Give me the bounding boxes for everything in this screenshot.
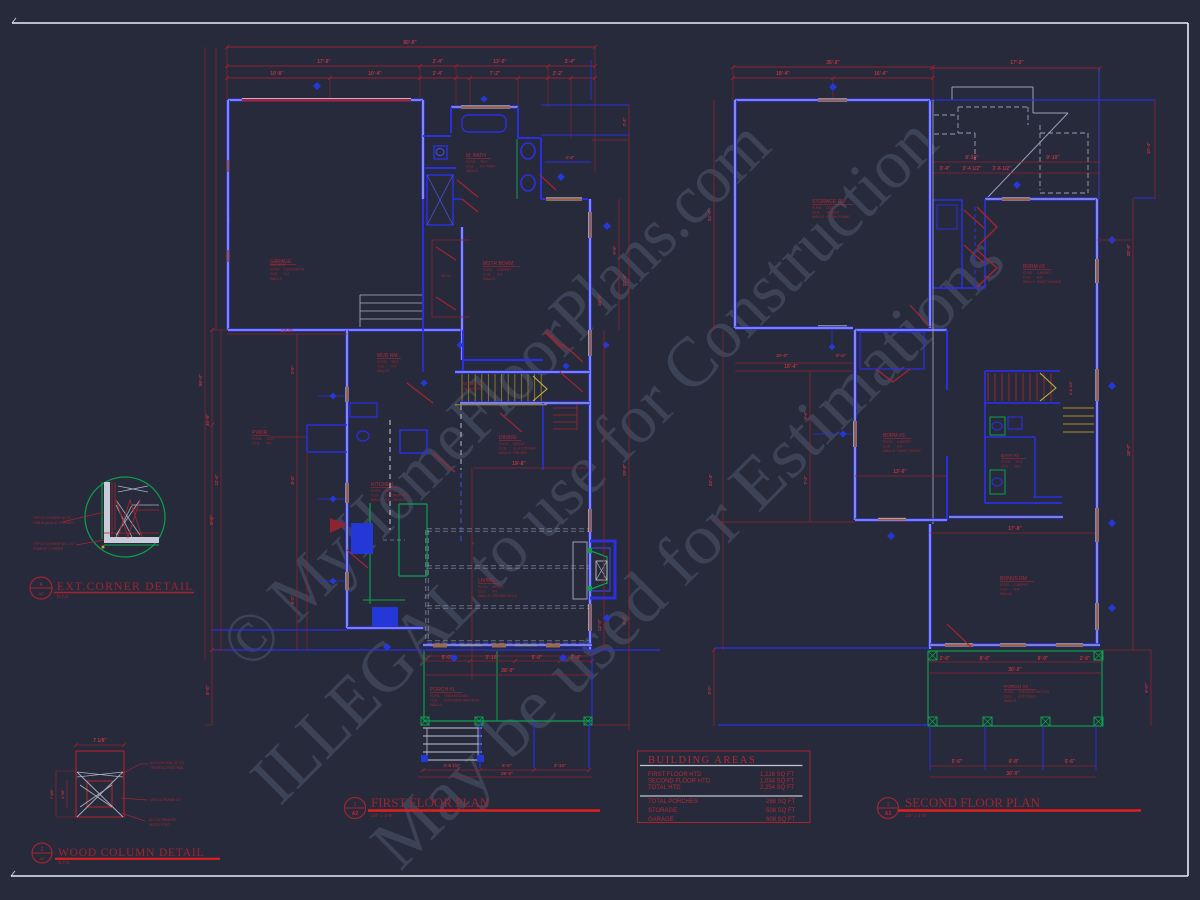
svg-text:FLRG: FLRG (883, 440, 893, 444)
svg-text:21'-4": 21'-4" (622, 274, 627, 286)
svg-text:FLRG: FLRG (377, 360, 387, 364)
svg-text:LIVING: LIVING (478, 578, 495, 584)
svg-text:BATH #2: BATH #2 (1001, 453, 1019, 458)
svg-text:TYP 2X CORNER W/ 1X: TYP 2X CORNER W/ 1X (33, 516, 71, 520)
svg-text:17'-8": 17'-8" (1008, 526, 1022, 532)
svg-text:MSTR BDRM: MSTR BDRM (483, 261, 513, 267)
svg-text:9'-0": 9'-0" (1144, 683, 1149, 693)
svg-text:WALLS: WALLS (270, 277, 283, 281)
svg-text:VARIES: VARIES (826, 211, 840, 215)
svg-text:FLRG: FLRG (430, 694, 440, 698)
svg-text:8'-0": 8'-0" (707, 685, 712, 694)
svg-text:WALLS: WALLS (1023, 280, 1036, 284)
svg-text:8'-0": 8'-0" (980, 656, 991, 662)
svg-text:35'-8": 35'-8" (826, 60, 840, 66)
svg-text:FLRG: FLRG (483, 268, 493, 272)
svg-text:2'-4": 2'-4" (433, 71, 444, 77)
svg-text:MUD RM: MUD RM (377, 353, 398, 359)
svg-text:CLG: CLG (252, 442, 260, 446)
svg-text:28'-0": 28'-0" (501, 771, 513, 776)
svg-text:CROWN MOLD: CROWN MOLD (492, 594, 518, 598)
svg-text:16 RISERS: 16 RISERS (463, 387, 482, 391)
svg-text:A2: A2 (39, 591, 45, 596)
svg-text:A3: A3 (885, 811, 892, 817)
svg-text:12'-0": 12'-0" (597, 619, 602, 631)
svg-text:ALT0 4X4 RAIL 4F CO: ALT0 4X4 RAIL 4F CO (150, 761, 184, 765)
svg-text:2'-0": 2'-0" (940, 656, 951, 662)
svg-text:4: 4 (40, 582, 43, 588)
svg-text:24'-0": 24'-0" (707, 209, 712, 221)
svg-text:WALLS: WALLS (377, 369, 390, 373)
svg-text:TILE: TILE (391, 360, 399, 364)
svg-text:PAINT GRADE: PAINT GRADE (897, 449, 922, 453)
svg-text:TILE: TILE (480, 160, 488, 164)
svg-text:3'-10": 3'-10" (554, 763, 566, 768)
svg-text:FIRST FLOOR PLAN: FIRST FLOOR PLAN (371, 795, 490, 810)
svg-text:8-0: 8-0 (1014, 588, 1019, 592)
svg-text:1: 1 (354, 802, 357, 808)
svg-text:10'-4": 10'-4" (368, 71, 382, 77)
svg-text:9'-10": 9'-10" (1046, 155, 1060, 161)
svg-text:10'-0": 10'-0" (776, 353, 788, 358)
svg-text:CLG: CLG (371, 494, 379, 498)
svg-text:WALLS: WALLS (371, 498, 384, 502)
svg-text:4 7/8": 4 7/8" (61, 789, 65, 799)
svg-text:8'-0": 8'-0" (290, 595, 295, 604)
svg-text:10'-4": 10'-4" (1146, 142, 1151, 154)
svg-text:BDRM #3: BDRM #3 (883, 433, 905, 439)
svg-text:GARAGE: GARAGE (648, 817, 674, 823)
svg-text:METAL FRAME 2X: METAL FRAME 2X (150, 798, 181, 802)
svg-text:9-0: 9-0 (266, 442, 271, 446)
svg-text:5'-6": 5'-6" (1065, 759, 1076, 765)
svg-text:FLRG: FLRG (371, 489, 381, 493)
svg-text:A2: A2 (40, 856, 46, 861)
svg-text:1,226 SQ FT: 1,226 SQ FT (760, 772, 795, 778)
svg-text:8-0: 8-0 (1037, 276, 1042, 280)
svg-text:CARPET: CARPET (897, 440, 912, 444)
svg-text:3'-6 1/2": 3'-6 1/2" (443, 763, 460, 768)
svg-text:19'-8": 19'-8" (622, 464, 627, 476)
svg-text:SECOND FLOOR HTD: SECOND FLOOR HTD (648, 779, 711, 785)
svg-text:W.I.C.: W.I.C. (441, 273, 452, 278)
svg-text:3'-4 1/2": 3'-4 1/2" (962, 166, 982, 172)
svg-text:WALLS: WALLS (1000, 592, 1013, 596)
svg-text:12'-4": 12'-4" (214, 474, 219, 485)
svg-text:WOOD POST: WOOD POST (149, 823, 170, 827)
svg-text:2'-2": 2'-2" (553, 71, 564, 77)
svg-text:18'-4": 18'-4" (776, 71, 790, 77)
svg-text:TOTAL PORCHES: TOTAL PORCHES (648, 799, 698, 805)
svg-text:CLG: CLG (812, 211, 820, 215)
svg-text:BUILDING AREAS: BUILDING AREAS (648, 755, 756, 766)
svg-text:FLRG: FLRG (1004, 690, 1014, 694)
svg-text:8'-0": 8'-0" (1038, 656, 1049, 662)
svg-text:STAIRS UP: STAIRS UP (463, 381, 484, 386)
svg-text:9-0: 9-0 (391, 365, 396, 369)
svg-text:TREATED WD: TREATED WD (444, 694, 468, 698)
svg-text:FLRG: FLRG (252, 437, 262, 441)
svg-text:FLRG: FLRG (812, 206, 822, 210)
svg-text:PWDR: PWDR (252, 430, 268, 436)
svg-text:FLRG: FLRG (478, 585, 488, 589)
svg-text:CLG: CLG (1004, 695, 1012, 699)
svg-text:9'-4": 9'-4" (622, 615, 627, 625)
svg-text:CLG: CLG (430, 699, 438, 703)
svg-text:FLRG: FLRG (1000, 583, 1010, 587)
svg-text:9-0: 9-0 (492, 590, 497, 594)
svg-text:CLG: CLG (466, 165, 474, 169)
svg-text:CLG: CLG (377, 365, 385, 369)
svg-text:TILE: TILE (1015, 460, 1023, 464)
svg-text:FLRG: FLRG (466, 160, 476, 164)
svg-text:5'-0": 5'-0" (502, 763, 512, 768)
svg-text:2: 2 (41, 847, 44, 853)
svg-text:CLG: CLG (499, 447, 507, 451)
svg-text:80'-8": 80'-8" (403, 40, 417, 46)
svg-text:CLG: CLG (883, 445, 891, 449)
svg-text:30'-0": 30'-0" (1008, 667, 1022, 673)
svg-text:FLRG: FLRG (1023, 271, 1033, 275)
svg-text:DINING: DINING (499, 435, 517, 441)
svg-text:TILE: TILE (266, 437, 274, 441)
svg-text:1/4" = 1'-0": 1/4" = 1'-0" (905, 813, 927, 818)
svg-text:WOOD: WOOD (492, 585, 504, 589)
svg-text:WOOD COLUMN DETAIL: WOOD COLUMN DETAIL (58, 847, 204, 859)
svg-text:WALLS: WALLS (883, 449, 896, 453)
svg-text:STORAGE: STORAGE (648, 808, 677, 814)
svg-text:WOOD: WOOD (513, 442, 525, 446)
svg-text:9'-8": 9'-8" (612, 245, 617, 254)
svg-text:FIRST FLOOR HTD: FIRST FLOOR HTD (648, 772, 702, 778)
svg-text:WALLS: WALLS (812, 215, 825, 219)
svg-text:1: 1 (887, 802, 890, 808)
svg-text:A2: A2 (352, 811, 359, 817)
svg-text:STORAGE RM: STORAGE RM (812, 199, 846, 205)
svg-text:M. BATH: M. BATH (466, 153, 486, 159)
svg-text:268 SQ FT: 268 SQ FT (766, 799, 796, 805)
svg-text:2'-0": 2'-0" (1080, 656, 1091, 662)
svg-text:3'-4": 3'-4" (622, 117, 627, 126)
svg-text:3'-6 1/2": 3'-6 1/2" (992, 166, 1012, 172)
svg-text:CARPET: CARPET (1014, 583, 1029, 587)
svg-text:CLG: CLG (483, 273, 491, 277)
svg-text:TREATED POST RAIL: TREATED POST RAIL (150, 766, 184, 770)
svg-text:CLG: CLG (270, 272, 278, 276)
svg-text:18'-0": 18'-0" (1126, 444, 1131, 456)
svg-text:8'-8": 8'-8" (205, 685, 210, 695)
svg-text:PAINT GRADE: PAINT GRADE (1037, 280, 1062, 284)
svg-text:TREATED WD FLR: TREATED WD FLR (1018, 690, 1050, 694)
svg-text:DECOR SHELF: DECOR SHELF (385, 498, 411, 502)
svg-text:ALT 2X TREATED: ALT 2X TREATED (149, 818, 177, 822)
svg-text:7'-2": 7'-2" (490, 71, 501, 77)
svg-text:WALLS: WALLS (466, 169, 479, 173)
svg-text:1/4" = 1'-0": 1/4" = 1'-0" (371, 813, 393, 818)
svg-text:608 SQ FT: 608 SQ FT (766, 817, 796, 823)
svg-text:BONUS RM: BONUS RM (1000, 576, 1027, 582)
svg-text:OSB BOARD AT CORNER: OSB BOARD AT CORNER (33, 521, 74, 525)
svg-text:28'-0": 28'-0" (501, 668, 515, 674)
svg-text:3'-4": 3'-4" (565, 155, 574, 160)
svg-text:13'-6": 13'-6" (893, 469, 907, 475)
svg-text:OSB: OSB (826, 206, 834, 210)
svg-text:CLG: CLG (1000, 588, 1008, 592)
svg-text:CLG: CLG (478, 590, 486, 594)
svg-text:56'-0": 56'-0" (198, 374, 203, 386)
svg-text:9-0 DROPPED: 9-0 DROPPED (385, 494, 409, 498)
svg-text:5'-0": 5'-0" (532, 655, 543, 661)
svg-text:3'-4": 3'-4" (565, 59, 576, 65)
svg-text:8'-8": 8'-8" (290, 475, 295, 484)
svg-text:11-0 COFFER: 11-0 COFFER (513, 447, 536, 451)
svg-text:8-0: 8-0 (1015, 465, 1020, 469)
svg-text:7 1/8": 7 1/8" (50, 789, 54, 799)
svg-text:30'-0": 30'-0" (1006, 771, 1020, 777)
svg-text:17'-0": 17'-0" (1010, 60, 1024, 66)
svg-text:3'-4": 3'-4" (940, 166, 951, 172)
svg-text:9'-8": 9'-8" (1009, 759, 1020, 765)
svg-text:9-0: 9-0 (497, 273, 502, 277)
svg-text:9-0 TRAY: 9-0 TRAY (480, 165, 496, 169)
svg-text:17'-8": 17'-8" (317, 59, 331, 65)
svg-text:FOAM AT CORNER: FOAM AT CORNER (33, 547, 64, 551)
svg-text:20'-8": 20'-8" (1126, 244, 1131, 256)
svg-text:5'-4": 5'-4" (836, 353, 846, 358)
svg-text:CLG: CLG (1023, 276, 1031, 280)
svg-text:1,034 SQ FT: 1,034 SQ FT (760, 779, 795, 785)
svg-text:EXPOSED RAFTERS: EXPOSED RAFTERS (444, 699, 480, 703)
svg-text:16'-4": 16'-4" (874, 71, 888, 77)
svg-text:WALLS: WALLS (499, 451, 512, 455)
svg-text:8-0: 8-0 (897, 445, 902, 449)
svg-text:5'-0": 5'-0" (803, 410, 808, 419)
svg-text:508 SQ FT: 508 SQ FT (766, 808, 796, 814)
svg-text:3'-4": 3'-4" (571, 655, 582, 661)
svg-text:PORCH #1: PORCH #1 (430, 687, 455, 693)
svg-text:CLG: CLG (1001, 465, 1009, 469)
svg-text:EXPOSED: EXPOSED (1018, 695, 1036, 699)
svg-text:N.T.S.: N.T.S. (58, 860, 70, 865)
svg-text:9-0: 9-0 (284, 272, 289, 276)
svg-text:SECOND FLOOR PLAN: SECOND FLOOR PLAN (905, 795, 1041, 810)
svg-text:16'-0": 16'-0" (597, 294, 602, 306)
svg-text:3'-6 1/2": 3'-6 1/2" (1069, 381, 1073, 396)
svg-text:13'-0": 13'-0" (493, 59, 507, 65)
svg-text:WALLS: WALLS (478, 594, 491, 598)
svg-text:WALLS: WALLS (483, 277, 496, 281)
svg-text:CARPET: CARPET (497, 268, 512, 272)
svg-text:TYP 2X CORNER W/ 1 1/2": TYP 2X CORNER W/ 1 1/2" (33, 542, 76, 546)
svg-text:CONCRETE: CONCRETE (284, 268, 305, 272)
svg-text:EXT.CORNER DETAIL: EXT.CORNER DETAIL (57, 581, 194, 593)
svg-text:19'-8": 19'-8" (512, 461, 526, 467)
svg-text:WALLS: WALLS (1004, 699, 1017, 703)
svg-text:FLRG: FLRG (270, 268, 280, 272)
svg-text:N.T.S.: N.T.S. (57, 594, 69, 599)
svg-text:FLRG: FLRG (1001, 460, 1011, 464)
svg-text:8'-10": 8'-10" (965, 155, 979, 161)
svg-text:30'-8": 30'-8" (205, 414, 210, 426)
svg-text:BDRM #2: BDRM #2 (1023, 264, 1045, 270)
svg-text:TOTAL HTD: TOTAL HTD (648, 785, 681, 791)
svg-text:CARPET: CARPET (1037, 271, 1052, 275)
svg-text:3'-10": 3'-10" (485, 655, 499, 661)
svg-text:7'-4": 7'-4" (803, 475, 808, 484)
svg-text:7 1/8": 7 1/8" (93, 738, 107, 744)
svg-text:2'-4": 2'-4" (433, 59, 444, 65)
svg-text:CROWN: CROWN (513, 451, 527, 455)
svg-text:WALLS: WALLS (430, 703, 443, 707)
svg-text:10'-8": 10'-8" (270, 71, 284, 77)
svg-text:2,254 SQ FT: 2,254 SQ FT (760, 785, 795, 791)
svg-text:13'-0": 13'-0" (281, 328, 293, 333)
svg-text:WOOD: WOOD (385, 489, 397, 493)
svg-text:GARAGE: GARAGE (270, 259, 292, 265)
svg-text:5'-6": 5'-6" (952, 759, 963, 765)
svg-text:FLRG: FLRG (499, 442, 509, 446)
svg-text:3'-0": 3'-0" (290, 365, 295, 374)
svg-text:OPEN FRAME: OPEN FRAME (826, 215, 850, 219)
svg-text:22'-4": 22'-4" (708, 474, 713, 486)
svg-text:15'-4": 15'-4" (784, 364, 798, 370)
